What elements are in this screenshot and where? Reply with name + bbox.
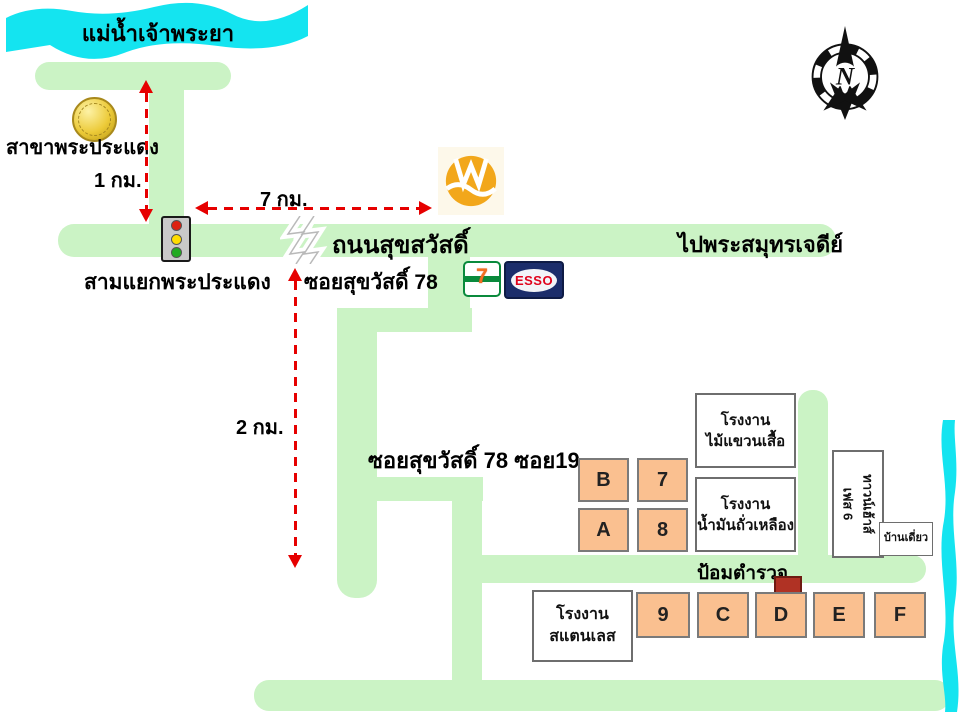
factory-stainless-line1: โรงงาน — [556, 604, 609, 626]
seven-eleven-logo: 7 — [463, 261, 501, 297]
road-soi19-connector — [452, 477, 482, 689]
block-E: E — [813, 592, 865, 638]
road-riverside — [35, 62, 231, 90]
block-B-label: B — [596, 469, 610, 492]
river-right-shape — [936, 420, 960, 712]
distance-2km-label: 2 กม. — [236, 411, 284, 443]
river-top-label: แม่น้ำเจ้าพระยา — [8, 16, 308, 51]
seven-eleven-digit: 7 — [465, 265, 499, 289]
factory-soybean-line2: น้ำมันถั่วเหลือง — [697, 515, 794, 536]
lotus-emblem-logo — [438, 147, 504, 215]
traffic-light-green — [171, 247, 182, 258]
esso-logo: ESSO — [504, 261, 564, 299]
traffic-light-icon — [161, 216, 191, 262]
block-A-label: A — [596, 519, 610, 542]
distance-1km-label: 1 กม. — [94, 164, 142, 196]
block-9-label: 9 — [657, 604, 668, 627]
factory-stainless-box: โรงงาน สแตนเลส — [532, 590, 633, 662]
arrow-7km-left — [195, 201, 208, 215]
traffic-light-red — [171, 220, 182, 231]
factory-hanger-line1: โรงงาน — [721, 410, 770, 431]
factory-hanger-line2: ไม้แขวนเสื้อ — [706, 431, 785, 452]
block-E-label: E — [832, 604, 845, 627]
townhouse-line1: ทาวน์เฮ้าส์ — [858, 454, 878, 554]
detached-house-box: บ้านเดี่ยว — [879, 522, 933, 556]
direction-right-label: ไปพระสมุทรเจดีย์ — [678, 227, 843, 262]
block-D: D — [755, 592, 807, 638]
block-C: C — [697, 592, 749, 638]
esso-wordmark: ESSO — [515, 273, 553, 288]
townhouse-box: ทาวน์เฮ้าส์ เฟส 6 — [832, 450, 884, 558]
block-8: 8 — [637, 508, 688, 552]
dashed-line-1km — [145, 93, 148, 210]
block-A: A — [578, 508, 629, 552]
road-bottom — [254, 680, 950, 711]
road-estate-vertical — [798, 390, 828, 583]
dashed-line-7km — [208, 207, 420, 210]
factory-soybean-line1: โรงงาน — [721, 494, 770, 515]
townhouse-line2: เฟส 6 — [839, 454, 859, 554]
road-soi19-lower — [452, 555, 926, 583]
block-7: 7 — [637, 458, 688, 502]
bank-branch-label: สาขาพระประแดง — [6, 131, 159, 163]
compass-rose: N — [798, 26, 892, 120]
block-F: F — [874, 592, 926, 638]
main-road-label: ถนนสุขสวัสดิ์ — [332, 225, 469, 264]
arrow-1km-up — [139, 80, 153, 93]
traffic-light-yellow — [171, 234, 182, 245]
block-9: 9 — [636, 592, 690, 638]
arrow-2km-up — [288, 268, 302, 281]
dashed-line-2km — [294, 281, 297, 556]
arrow-7km-right — [419, 201, 432, 215]
esso-oval: ESSO — [511, 269, 557, 292]
block-D-label: D — [774, 604, 788, 627]
compass-north-letter: N — [835, 62, 856, 90]
map-canvas: แม่น้ำเจ้าพระยา N สาขาพระประแดง 1 กม. 7 … — [0, 0, 960, 720]
block-7-label: 7 — [657, 469, 668, 492]
block-8-label: 8 — [657, 519, 668, 542]
distance-7km-label: 7 กม. — [260, 183, 308, 215]
soi78-label: ซอยสุขวัสดิ์ 78 — [304, 266, 438, 299]
block-B: B — [578, 458, 629, 502]
factory-soybean-box: โรงงาน น้ำมันถั่วเหลือง — [695, 477, 796, 552]
arrow-1km-down — [139, 209, 153, 222]
junction-label: สามแยกพระประแดง — [84, 266, 271, 299]
block-F-label: F — [894, 604, 906, 627]
road-break-zigzag-icon — [280, 216, 330, 264]
arrow-2km-down — [288, 555, 302, 568]
block-C-label: C — [716, 604, 730, 627]
soi19-label: ซอยสุขวัสดิ์ 78 ซอย19 — [368, 443, 580, 478]
detached-house-label: บ้านเดี่ยว — [884, 531, 928, 546]
factory-hanger-box: โรงงาน ไม้แขวนเสื้อ — [695, 393, 796, 468]
factory-stainless-line2: สแตนเลส — [549, 626, 615, 648]
townhouse-text: ทาวน์เฮ้าส์ เฟส 6 — [839, 454, 878, 554]
